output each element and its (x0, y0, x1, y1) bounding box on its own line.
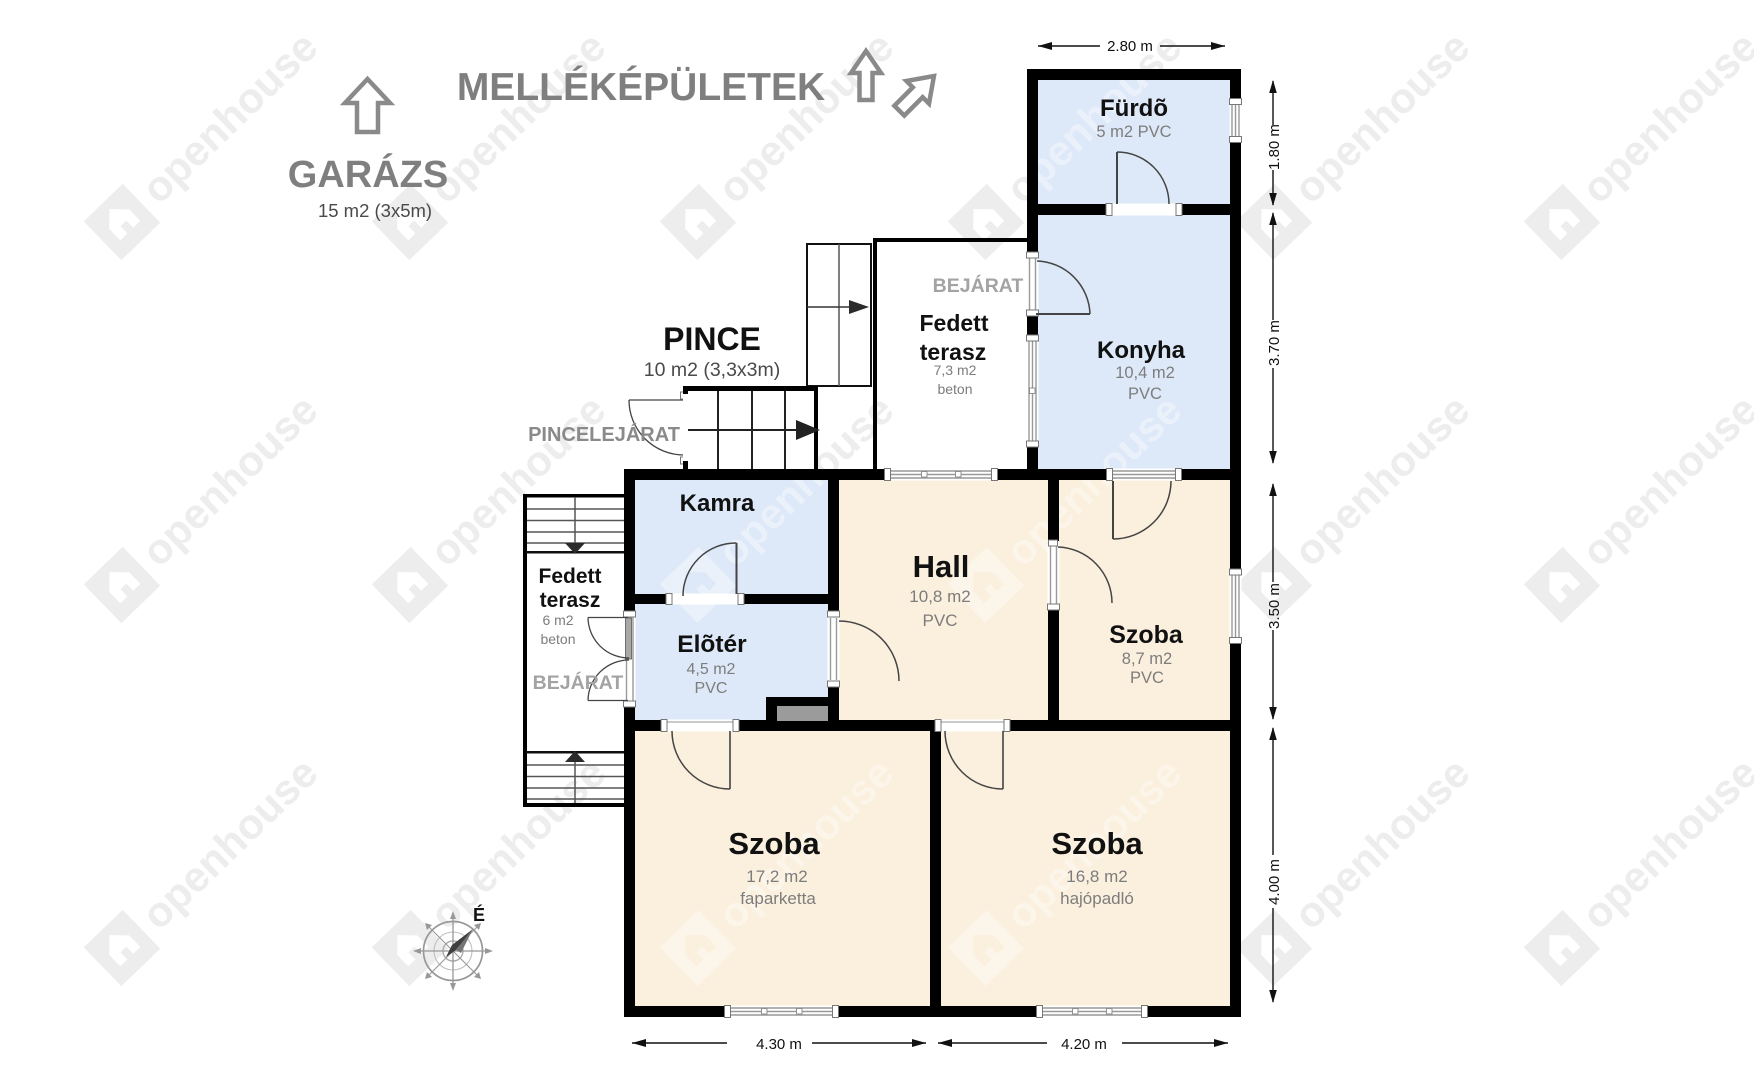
svg-text:Fedett: Fedett (920, 310, 989, 336)
svg-text:BEJÁRAT: BEJÁRAT (933, 274, 1024, 297)
svg-text:PVC: PVC (1130, 669, 1164, 687)
svg-text:PVC: PVC (923, 611, 958, 630)
svg-text:16,8 m2: 16,8 m2 (1066, 867, 1127, 886)
svg-text:10,4 m2: 10,4 m2 (1115, 364, 1175, 382)
svg-text:faparketta: faparketta (740, 889, 816, 908)
svg-text:Fedett: Fedett (539, 565, 602, 588)
svg-text:beton: beton (540, 631, 575, 647)
svg-text:PVC: PVC (1128, 385, 1162, 403)
svg-text:3.70 m: 3.70 m (1266, 320, 1283, 366)
svg-text:7,3 m2: 7,3 m2 (934, 362, 977, 378)
svg-text:17,2 m2: 17,2 m2 (746, 867, 807, 886)
svg-text:Szoba: Szoba (1051, 826, 1143, 861)
svg-text:8,7 m2: 8,7 m2 (1122, 650, 1172, 668)
svg-text:BEJÁRAT: BEJÁRAT (533, 671, 624, 694)
svg-text:4.30 m: 4.30 m (756, 1036, 802, 1053)
svg-text:hajópadló: hajópadló (1060, 889, 1134, 908)
svg-text:6 m2: 6 m2 (542, 612, 573, 628)
svg-text:10,8 m2: 10,8 m2 (909, 587, 970, 606)
svg-text:GARÁZS: GARÁZS (288, 152, 448, 196)
svg-text:terasz: terasz (540, 589, 601, 612)
svg-text:5 m2 PVC: 5 m2 PVC (1096, 123, 1171, 141)
svg-text:PINCE: PINCE (663, 321, 761, 357)
svg-text:2.80 m: 2.80 m (1107, 38, 1153, 55)
svg-text:1.80 m: 1.80 m (1266, 124, 1283, 170)
svg-text:Kamra: Kamra (680, 490, 755, 517)
svg-text:Fürdõ: Fürdõ (1100, 95, 1168, 122)
svg-text:Hall: Hall (913, 549, 970, 584)
svg-text:4.20 m: 4.20 m (1061, 1036, 1107, 1053)
svg-text:É: É (473, 904, 485, 925)
svg-text:15 m2 (3x5m): 15 m2 (3x5m) (318, 200, 432, 221)
svg-text:Konyha: Konyha (1097, 337, 1186, 364)
svg-text:10 m2 (3,3x3m): 10 m2 (3,3x3m) (644, 359, 781, 381)
svg-text:4,5 m2: 4,5 m2 (687, 661, 736, 678)
svg-text:PINCELEJÁRAT: PINCELEJÁRAT (528, 423, 680, 446)
svg-text:PVC: PVC (695, 680, 728, 697)
svg-text:beton: beton (937, 381, 972, 397)
svg-text:Szoba: Szoba (728, 826, 820, 861)
svg-text:4.00 m: 4.00 m (1266, 859, 1283, 905)
svg-text:Elõtér: Elõtér (677, 631, 747, 658)
svg-text:MELLÉKÉPÜLETEK: MELLÉKÉPÜLETEK (457, 65, 825, 109)
svg-text:Szoba: Szoba (1109, 621, 1184, 649)
svg-text:3.50 m: 3.50 m (1266, 583, 1283, 629)
